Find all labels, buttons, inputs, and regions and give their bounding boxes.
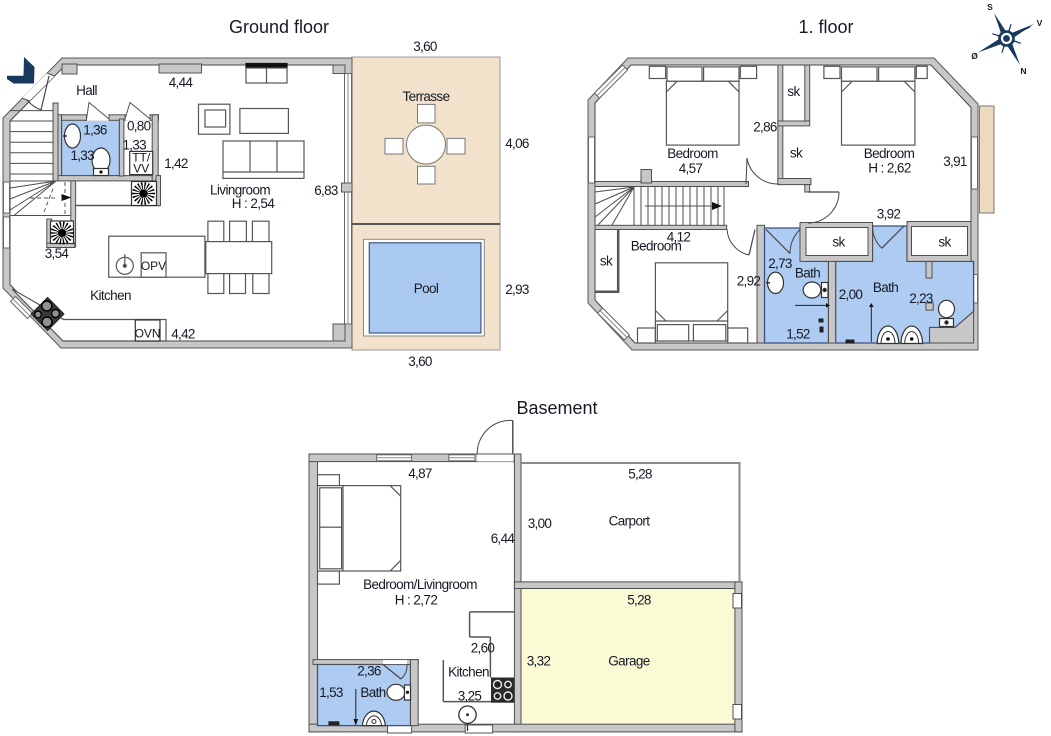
svg-text:Terrasse: Terrasse: [403, 89, 450, 104]
svg-text:4,87: 4,87: [408, 466, 432, 481]
svg-text:sk: sk: [938, 235, 951, 250]
svg-text:6,83: 6,83: [314, 183, 338, 198]
svg-text:4,06: 4,06: [505, 136, 529, 151]
svg-text:2,00: 2,00: [839, 287, 863, 302]
svg-text:Bedroom: Bedroom: [631, 239, 682, 254]
svg-text:3,60: 3,60: [408, 354, 432, 369]
svg-text:2,86: 2,86: [753, 120, 777, 135]
svg-text:1,53: 1,53: [319, 685, 343, 700]
svg-text:3,00: 3,00: [528, 516, 552, 531]
svg-text:3,25: 3,25: [458, 689, 482, 704]
svg-text:2,93: 2,93: [505, 282, 529, 297]
svg-text:3,54: 3,54: [45, 246, 70, 261]
svg-text:N: N: [1020, 66, 1026, 76]
svg-text:1,36: 1,36: [83, 123, 107, 138]
svg-text:Bath: Bath: [360, 685, 385, 700]
svg-text:sk: sk: [832, 235, 845, 250]
svg-text:2,60: 2,60: [471, 641, 495, 656]
svg-text:5,28: 5,28: [628, 467, 652, 482]
svg-text:1. floor: 1. floor: [798, 17, 853, 37]
svg-text:V: V: [1037, 18, 1043, 28]
svg-text:H : 2,54: H : 2,54: [232, 196, 276, 211]
svg-text:S: S: [987, 2, 993, 12]
svg-text:VV: VV: [133, 162, 149, 176]
svg-text:3,91: 3,91: [943, 154, 967, 169]
svg-text:Bedroom: Bedroom: [864, 146, 915, 161]
svg-text:Bath: Bath: [795, 266, 820, 281]
svg-text:Pool: Pool: [414, 281, 439, 296]
svg-text:Hall: Hall: [76, 83, 97, 98]
svg-text:Ø: Ø: [971, 51, 978, 61]
svg-text:6,44: 6,44: [491, 531, 516, 546]
svg-text:Bath: Bath: [873, 280, 898, 295]
svg-text:3,92: 3,92: [877, 207, 901, 222]
svg-text:4,57: 4,57: [679, 161, 703, 176]
svg-text:Garage: Garage: [608, 654, 650, 669]
svg-text:1,52: 1,52: [786, 327, 810, 342]
svg-text:1,33: 1,33: [70, 148, 94, 163]
svg-text:Kitchen: Kitchen: [90, 288, 131, 303]
svg-text:3,60: 3,60: [413, 39, 437, 54]
svg-text:2,92: 2,92: [737, 274, 761, 289]
svg-text:H : 2,62: H : 2,62: [868, 161, 911, 176]
svg-text:sk: sk: [600, 254, 613, 269]
svg-text:Carport: Carport: [609, 514, 651, 529]
svg-text:sk: sk: [787, 84, 800, 99]
svg-text:Basement: Basement: [516, 398, 597, 418]
svg-text:Bedroom/Livingroom: Bedroom/Livingroom: [363, 577, 477, 592]
svg-text:OVN: OVN: [135, 327, 161, 341]
svg-text:Kitchen: Kitchen: [448, 665, 489, 680]
svg-text:2,23: 2,23: [909, 291, 933, 306]
svg-text:sk: sk: [790, 146, 803, 161]
svg-text:4,42: 4,42: [171, 327, 195, 342]
svg-text:1,42: 1,42: [164, 156, 188, 171]
svg-text:Ground floor: Ground floor: [229, 17, 329, 37]
svg-text:H : 2,72: H : 2,72: [395, 593, 438, 608]
svg-text:OPV: OPV: [141, 259, 166, 273]
svg-text:5,28: 5,28: [627, 593, 651, 608]
svg-text:3,32: 3,32: [527, 654, 551, 669]
svg-text:2,73: 2,73: [768, 256, 792, 271]
svg-text:4,44: 4,44: [169, 75, 194, 90]
svg-text:0,80: 0,80: [127, 119, 151, 134]
svg-text:Bedroom: Bedroom: [667, 146, 718, 161]
svg-text:2,36: 2,36: [357, 664, 381, 679]
